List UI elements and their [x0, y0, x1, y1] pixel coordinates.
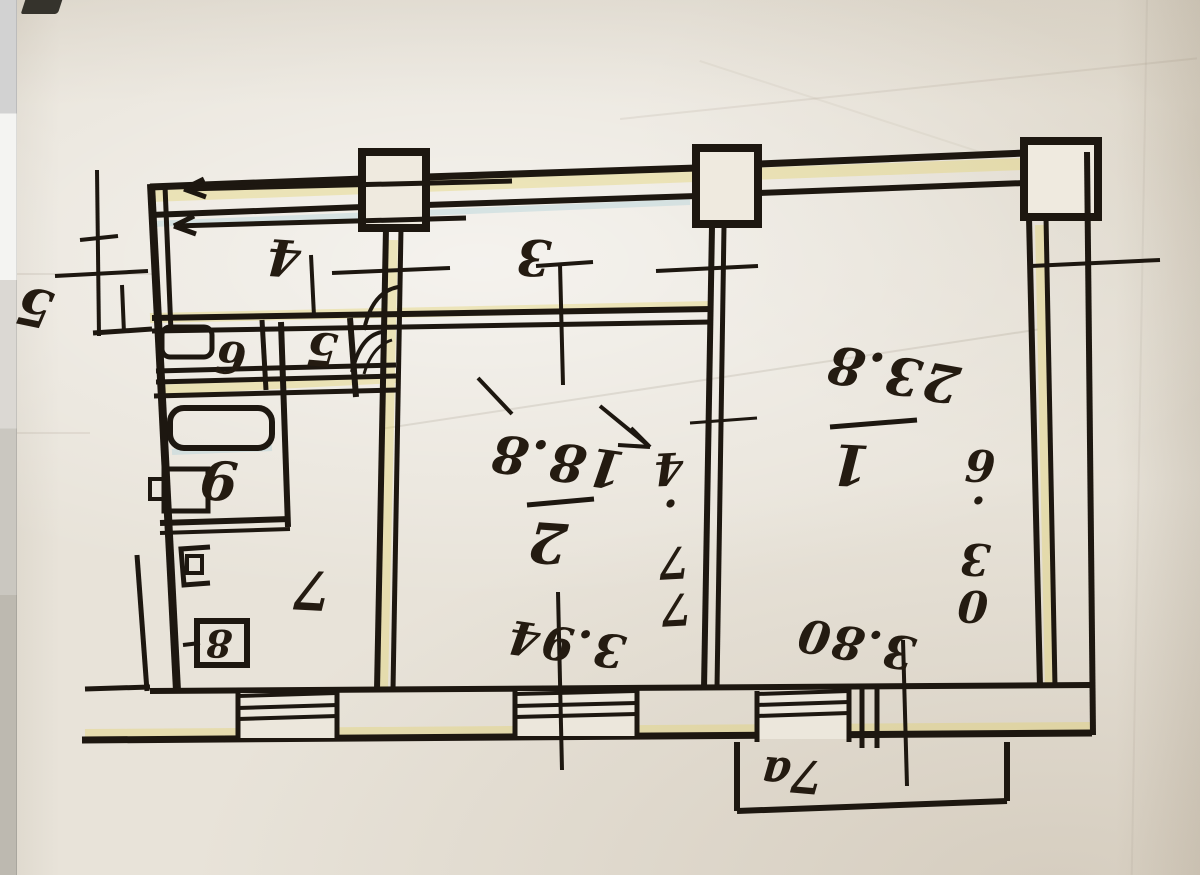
toilet-symbol	[181, 547, 210, 585]
label-washroom-number: 6	[214, 333, 248, 380]
label-bathroom-number: 9	[198, 451, 240, 508]
dimension-room1-depth: 03.6	[950, 442, 1004, 632]
pilaster	[362, 152, 426, 228]
label-hallway-number: 4	[265, 231, 303, 283]
floor-plan-photo: 5 4 3 6 5 9 7 8 23.8 1 18.8 2 7a 3.94 3.…	[0, 0, 1200, 875]
label-room2-number: 2	[527, 513, 570, 572]
room2-fraction-bar	[527, 499, 594, 505]
bathtub-symbol	[170, 408, 272, 448]
label-wc-number: 5	[304, 325, 340, 374]
window-symbol	[515, 689, 638, 738]
label-balcony-number: 7a	[759, 749, 825, 800]
window-symbol	[757, 689, 877, 748]
label-room1-number: 1	[829, 435, 871, 493]
dimension-room2-depth: 77.4	[646, 445, 700, 635]
pilaster	[696, 148, 758, 224]
room1-fraction-bar	[830, 420, 917, 427]
window-symbol	[238, 691, 337, 740]
label-corridor-number: 3	[515, 231, 552, 283]
label-kitchen-number: 7	[292, 562, 332, 618]
staircase-landing-lines	[55, 170, 152, 336]
label-closet-number: 8	[205, 624, 232, 662]
